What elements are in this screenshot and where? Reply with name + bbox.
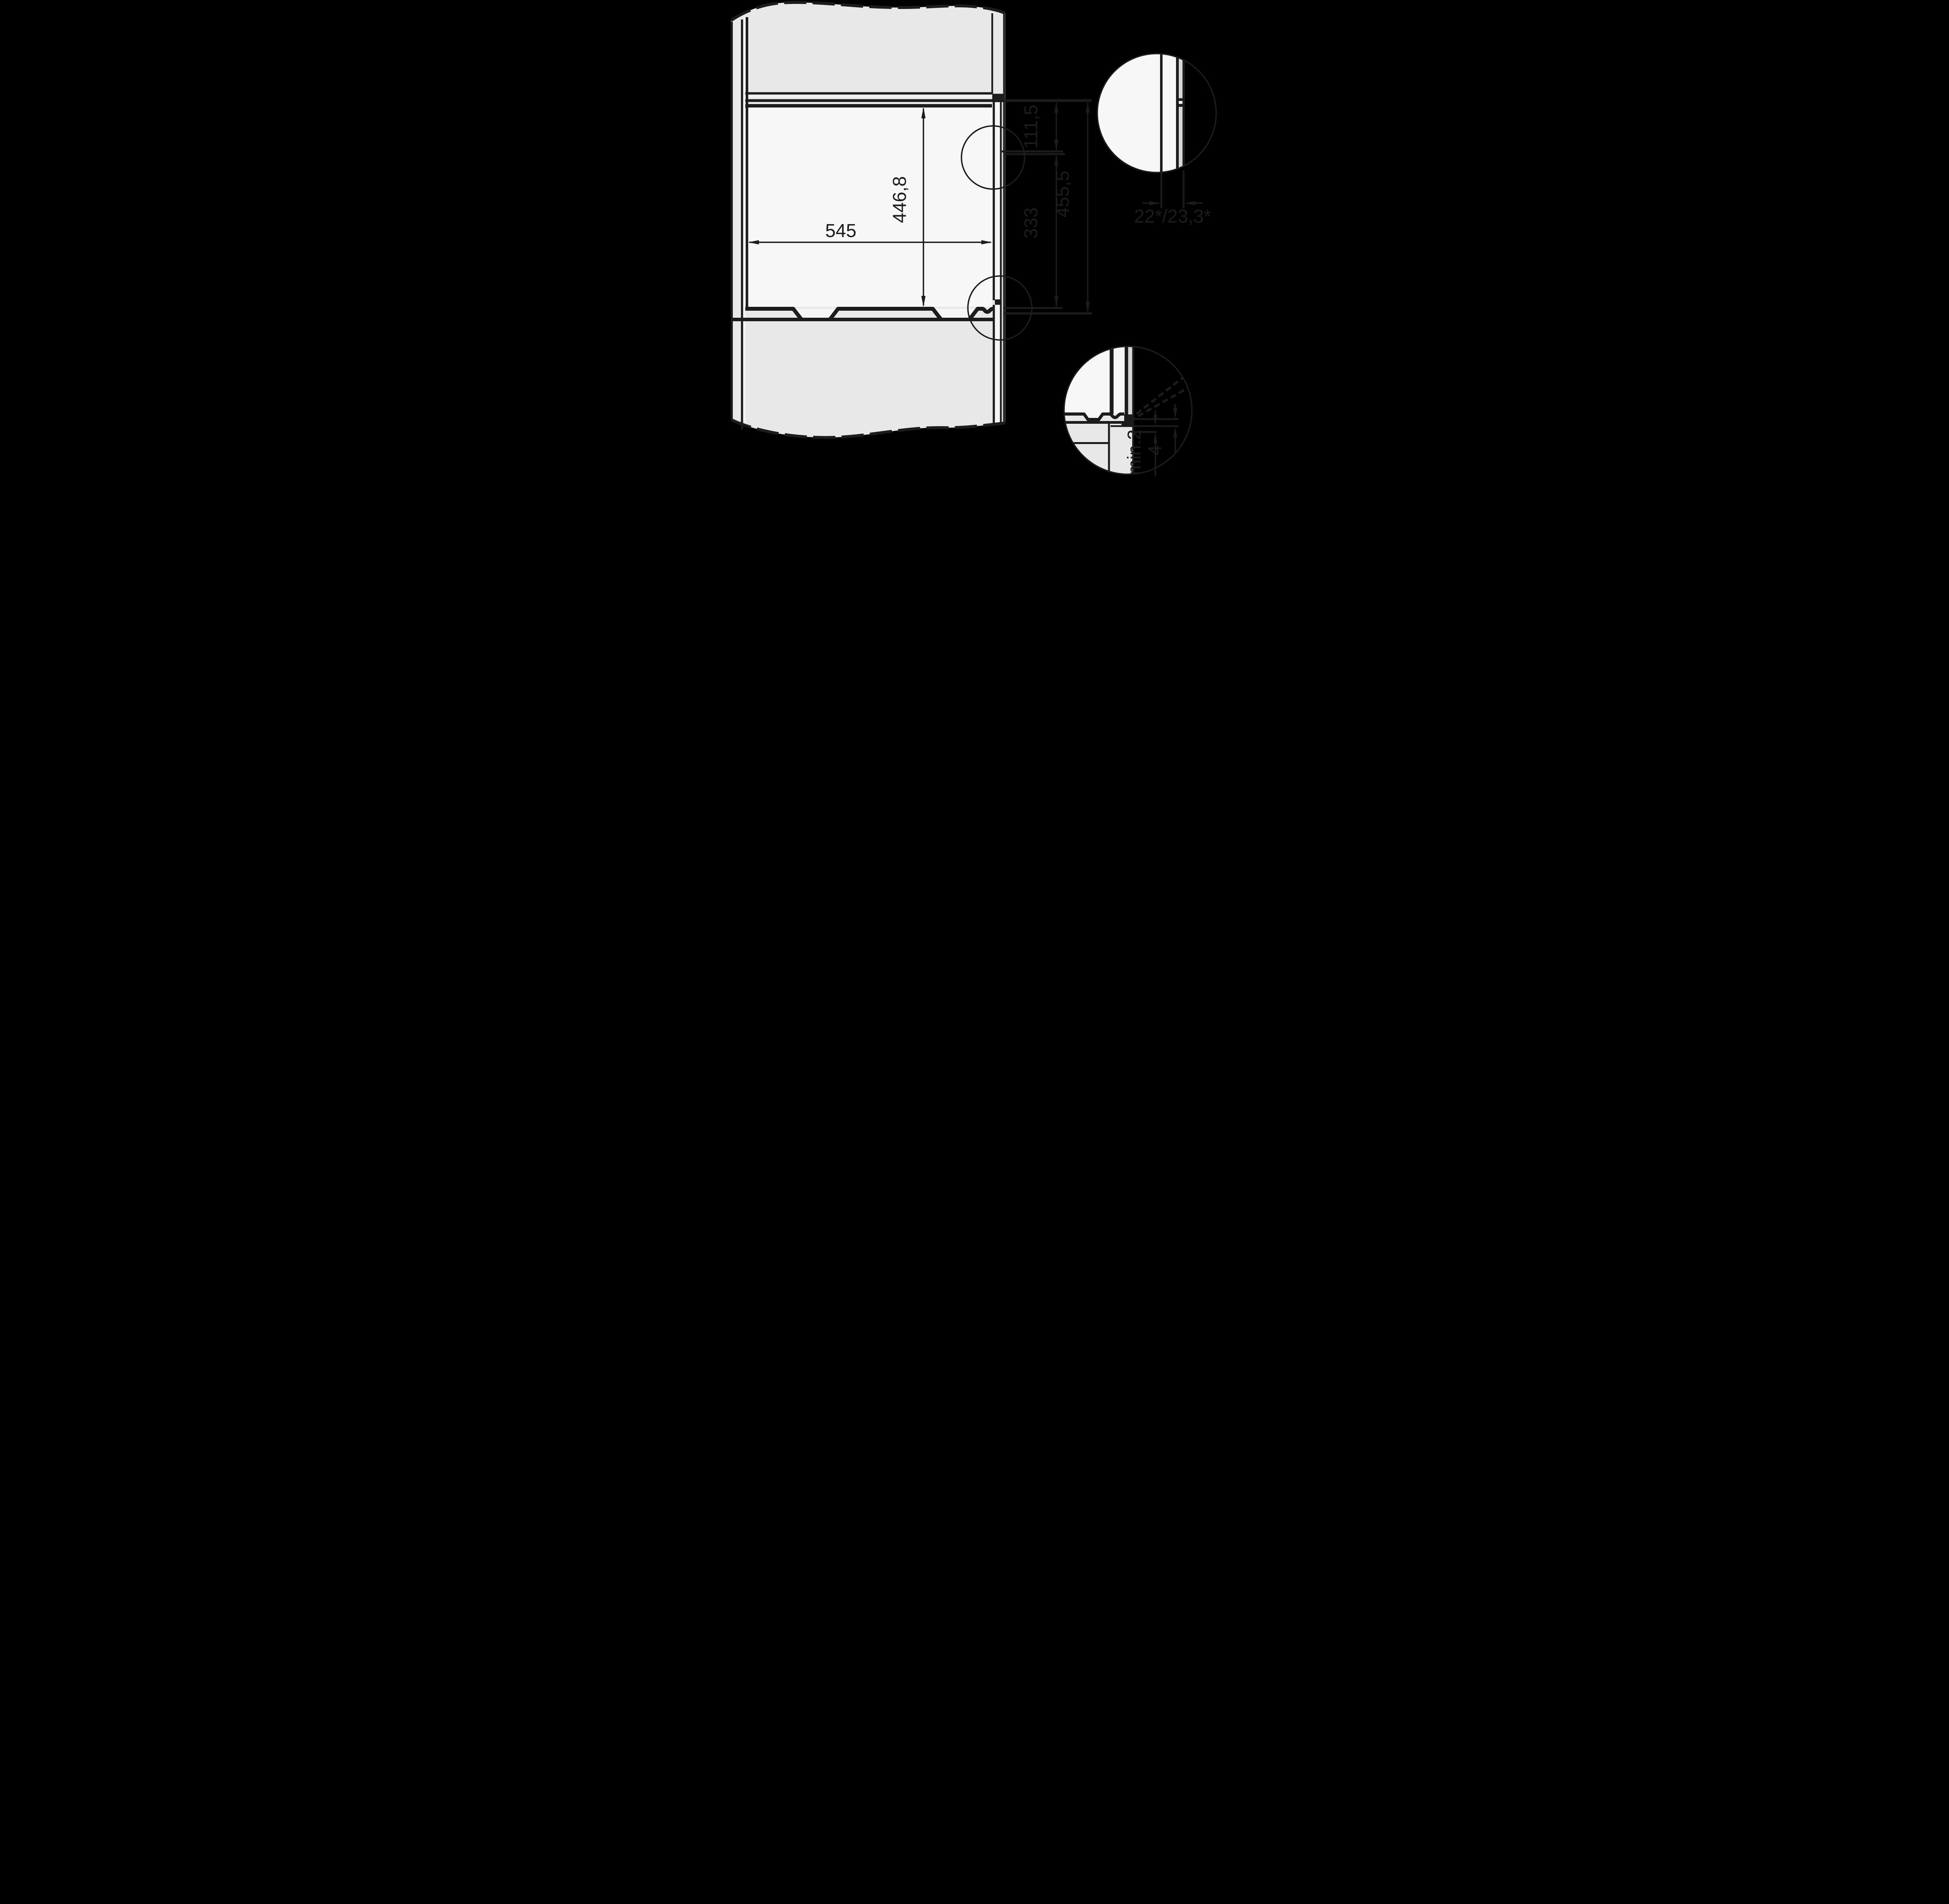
left-wall-gap-strip <box>743 17 746 423</box>
front-panel-thickness-label: 22*/23,3* <box>1134 206 1211 227</box>
bottom-gap-label: 4 <box>1145 445 1166 456</box>
right-wall-gap-lower <box>995 305 1001 423</box>
offset-middle-label: 333 <box>1021 207 1042 239</box>
installation-diagram: 446,8 545 111,5 333 455,5 <box>731 0 1218 476</box>
niche-width-label: 545 <box>825 221 856 241</box>
front-panel-lower <box>1179 107 1182 175</box>
niche-height-label: 446,8 <box>890 176 910 223</box>
right-wall-gap-upper <box>995 102 1001 299</box>
front-panel-detail <box>1128 345 1132 416</box>
rear-clearance-label: min.2 <box>1124 430 1145 475</box>
right-wall-corner-block <box>992 94 1005 103</box>
niche-interior <box>748 108 992 307</box>
offset-top-label: 111,5 <box>1021 105 1042 149</box>
installation-diagram-page: 446,8 545 111,5 333 455,5 <box>731 0 1218 476</box>
top-shelf-strip <box>745 95 992 98</box>
right-wall-floor-junction <box>995 299 1000 305</box>
offset-total-label: 455,5 <box>1052 171 1073 218</box>
